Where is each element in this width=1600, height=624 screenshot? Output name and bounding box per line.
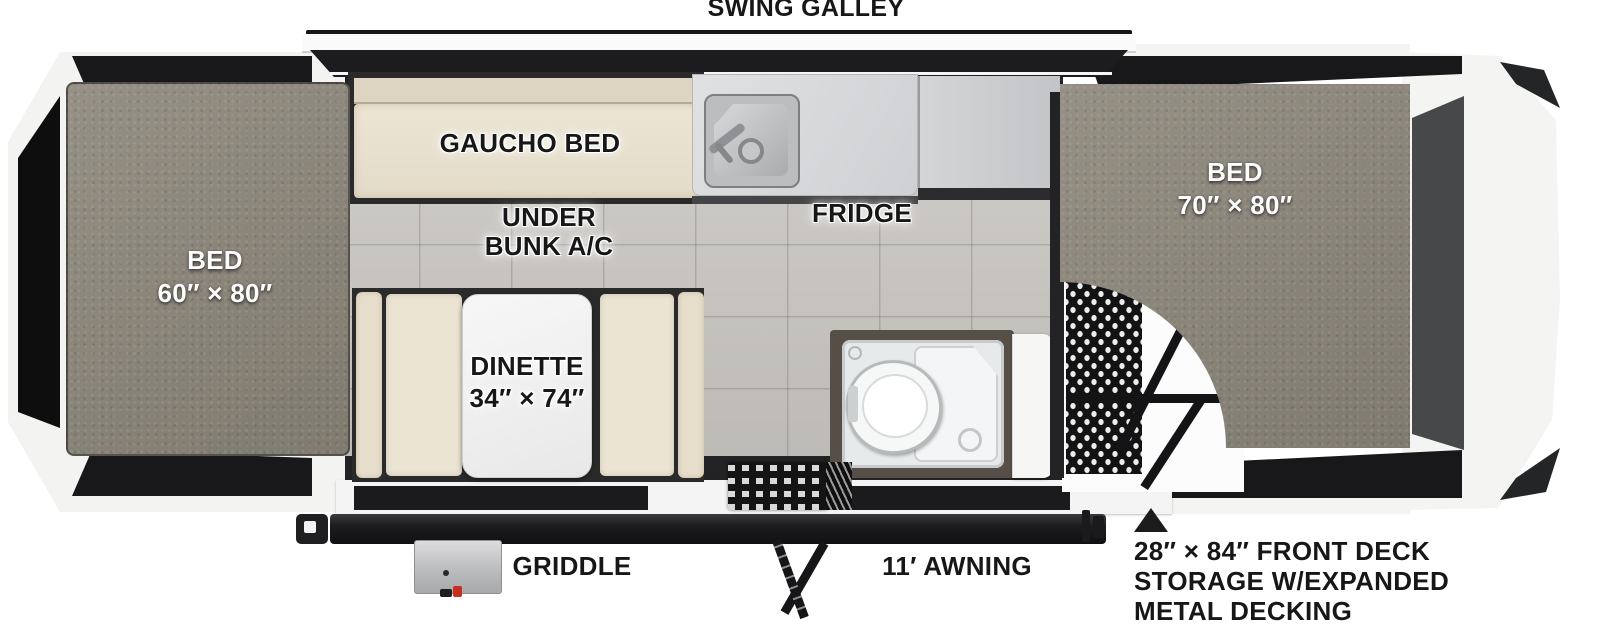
skirt-panel-left <box>354 486 648 510</box>
griddle-knob <box>443 570 449 576</box>
awning-right-bracket <box>1082 510 1090 542</box>
dinette-backrest-left <box>356 292 382 478</box>
griddle-plug <box>440 589 452 597</box>
front-deck-note-line2: STORAGE W/EXPANDED <box>1134 566 1449 596</box>
griddle-label: GRIDDLE <box>512 551 631 581</box>
entry-step-hinge <box>826 462 852 510</box>
fridge-label: FRIDGE <box>812 198 912 228</box>
under-bunk-ac-line1: UNDER <box>485 203 614 232</box>
right-bed-label: BED 70″ × 80″ <box>1177 156 1292 222</box>
gaucho-bed-label: GAUCHO BED <box>440 128 621 158</box>
awning-right-bracket-hook <box>1093 516 1104 538</box>
awning-label: 11′ AWNING <box>882 551 1032 581</box>
shower-drain <box>958 428 982 452</box>
front-deck-note-line1: 28″ × 84″ FRONT DECK <box>1134 536 1449 566</box>
wardrobe-cabinet <box>1012 334 1053 478</box>
right-bed-dimensions: 70″ × 80″ <box>1177 189 1292 222</box>
shower-fixture-dot <box>848 346 862 360</box>
under-bunk-ac-label: UNDER BUNK A/C <box>485 203 614 261</box>
toilet-hinge <box>848 386 858 422</box>
front-deck-note: 28″ × 84″ FRONT DECK STORAGE W/EXPANDED … <box>1134 536 1449 624</box>
front-deck-arrow-icon <box>1134 508 1168 532</box>
dinette-label: DINETTE 34″ × 74″ <box>469 350 584 414</box>
dinette-seat-right <box>600 294 674 476</box>
entry-step <box>728 462 828 510</box>
sink-sprayer <box>738 138 764 164</box>
swing-galley-label: SWING GALLEY <box>708 0 905 23</box>
gaucho-bed-backrest <box>354 78 700 104</box>
fridge-cabinet-base <box>918 188 1058 200</box>
right-bed-title: BED <box>1177 156 1292 189</box>
dinette-seat-left <box>386 294 462 476</box>
under-bunk-ac-line2: BUNK A/C <box>485 232 614 261</box>
griddle-switch <box>453 586 462 597</box>
left-bed-dimensions: 60″ × 80″ <box>157 277 272 310</box>
dinette-dimensions: 34″ × 74″ <box>469 382 584 414</box>
dinette-backrest-right <box>678 292 704 478</box>
front-deck-note-line3: METAL DECKING <box>1134 596 1449 624</box>
fridge-cabinet <box>918 76 1060 190</box>
skirt-panel-right <box>842 486 1070 510</box>
floorplan: SWING GALLEY BED 60″ × 80″ BED 70″ × 80″… <box>0 0 1600 624</box>
left-bed-label: BED 60″ × 80″ <box>157 244 272 310</box>
awning-left-pivot-notch <box>304 521 316 533</box>
left-bed-title: BED <box>157 244 272 277</box>
dinette-title: DINETTE <box>469 350 584 382</box>
toilet-seat <box>862 374 928 438</box>
